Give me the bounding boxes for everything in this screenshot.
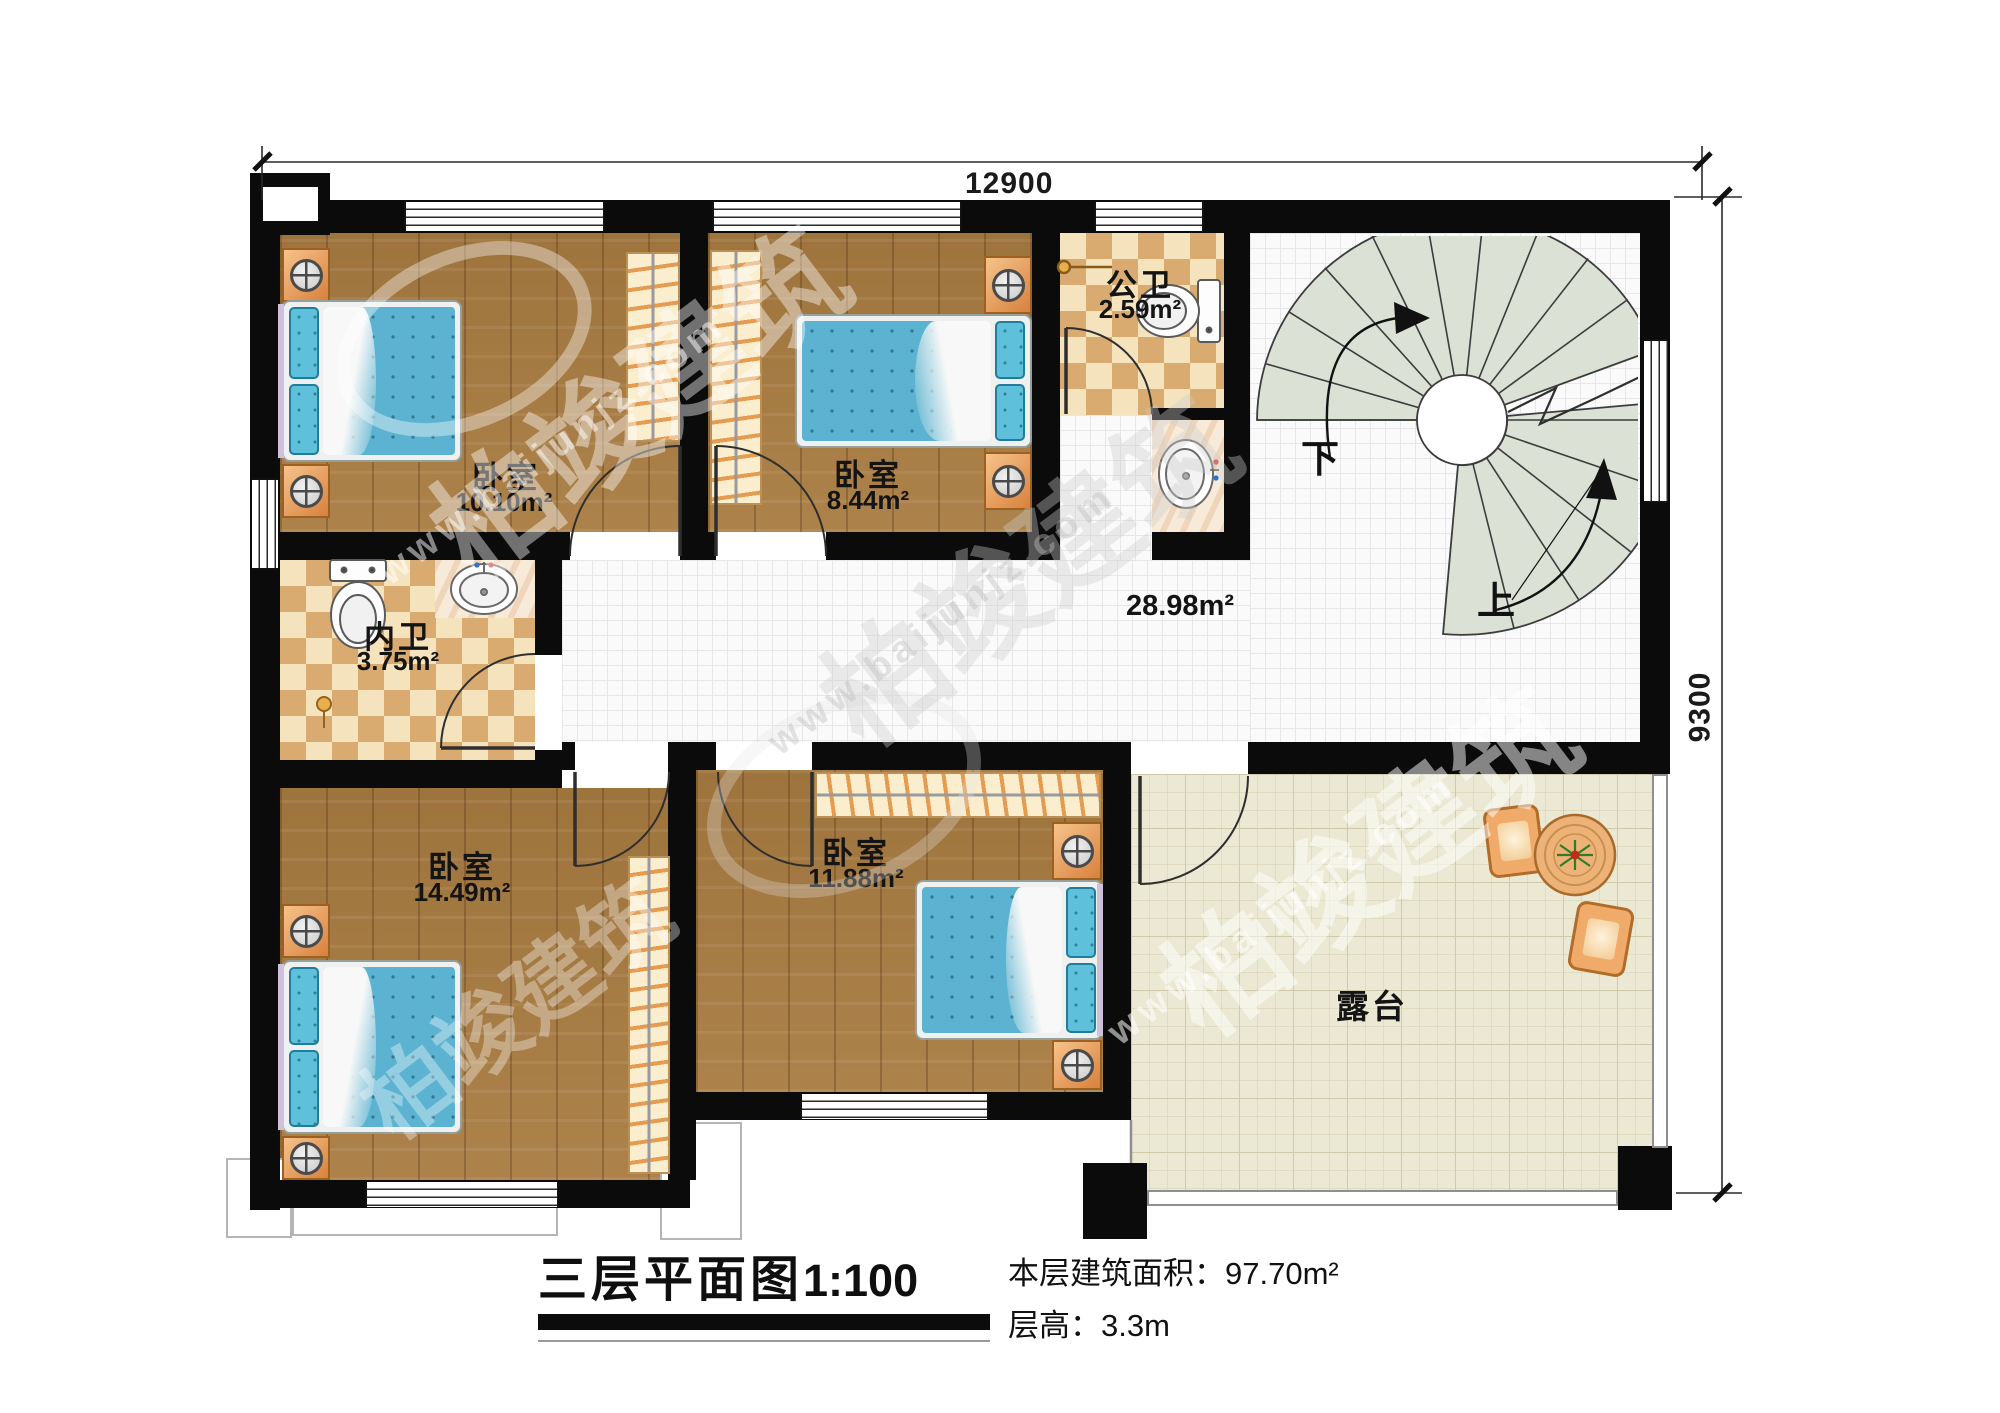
headboard (1097, 884, 1103, 1036)
floor-height-line: 层高：3.3m (1008, 1300, 1170, 1345)
headboard (278, 964, 284, 1130)
bed-bedroom1 (282, 300, 462, 462)
drawing-title: 三层平面图1:100 (538, 1240, 918, 1311)
title-underline-bar (538, 1314, 990, 1330)
terrace-chair (1566, 899, 1635, 978)
lamp-icon (992, 465, 1025, 498)
lamp-icon (290, 475, 323, 508)
lamp-icon (290, 915, 323, 948)
window-stairhall (1094, 202, 1204, 231)
pillows (1066, 887, 1096, 1033)
wall-bath-east (1224, 232, 1250, 532)
nightstand (984, 256, 1032, 314)
blanket (922, 887, 1062, 1033)
title-text: 三层平面图 (538, 1253, 803, 1307)
nightstand (282, 904, 330, 958)
terrace-column-se (1618, 1146, 1672, 1210)
wardrobe-bedroom4 (815, 772, 1101, 818)
blanket (323, 307, 455, 455)
dimension-right: 9300 (1683, 672, 1717, 743)
bedroom3-area: 14.49m² (414, 877, 511, 908)
lamp-icon (290, 1142, 323, 1175)
terrace-label: 露台 (1336, 980, 1408, 1028)
bedroom1-area: 10.10m² (456, 487, 553, 518)
window-bedroom4 (800, 1094, 989, 1119)
nightstand (282, 248, 330, 302)
nightstand (1052, 822, 1102, 880)
floor-area-label: 本层建筑面积： (1008, 1256, 1225, 1291)
wall-nook-top (1152, 408, 1224, 420)
bath-passage-floor (1060, 415, 1152, 560)
window-bedroom2 (712, 202, 962, 231)
lamp-icon (290, 259, 323, 292)
title-underline-thin (538, 1340, 990, 1342)
bedroom4-area: 11.88m² (808, 863, 903, 894)
floorplan-canvas: 卧室 10.10m² 卧室 8.44m² 公卫 2.59m² 内卫 3.75m²… (0, 0, 2000, 1413)
wall-bed2-south-b (826, 532, 1032, 560)
wall-corridor-south-b (668, 742, 716, 770)
window-bedroom3 (365, 1182, 559, 1207)
nightstand (282, 1136, 330, 1180)
terrace-railing-south (1147, 1190, 1618, 1206)
floor-height-value: 3.3m (1101, 1308, 1170, 1343)
public-bath-area: 2.59m² (1099, 294, 1181, 325)
wash-nook-floor (1152, 420, 1224, 532)
wall-terrace-north (1248, 742, 1670, 774)
lamp-icon (992, 269, 1025, 302)
wardrobe-bedroom3 (628, 856, 670, 1174)
wall-bed2-south-a (708, 532, 716, 560)
stairwell-floor (1250, 233, 1640, 742)
pillows (289, 967, 319, 1127)
terrace-chair (1482, 803, 1546, 879)
inner-bath-counter (435, 560, 535, 618)
title-scale: 1:100 (803, 1255, 918, 1306)
wall-innerbath-east-b (535, 750, 562, 760)
wardrobe-bedroom1 (626, 252, 680, 442)
wall-innerbath-east-a (535, 560, 562, 655)
wall-left (250, 200, 280, 1210)
lamp-icon (1061, 835, 1094, 868)
headboard (278, 304, 284, 458)
bed-bedroom3 (282, 960, 462, 1134)
wall-bed1-south (280, 532, 570, 560)
floor-area-line: 本层建筑面积：97.70m² (1008, 1248, 1339, 1293)
floor-area-value: 97.70m² (1225, 1256, 1339, 1291)
wall-innerbath-south (250, 760, 562, 788)
corner-flue-void (263, 187, 318, 221)
lamp-icon (1061, 1049, 1094, 1082)
window-stairs-east (1644, 339, 1668, 503)
bedroom2-area: 8.44m² (827, 485, 909, 516)
exterior-step (292, 1206, 558, 1236)
blanket (802, 321, 991, 441)
terrace-railing-east (1652, 774, 1668, 1148)
window-innerbath (252, 478, 278, 570)
dimension-top: 12900 (965, 167, 1053, 201)
window-bedroom1 (404, 202, 605, 231)
nightstand (282, 464, 330, 518)
bed-bedroom2 (795, 314, 1032, 448)
nightstand (984, 452, 1032, 510)
stairs-down-label: 下 (1301, 428, 1339, 483)
hallway-area: 28.98m² (1126, 590, 1234, 623)
wall-bed1-bed2 (680, 232, 708, 560)
wall-bed4-east (1103, 742, 1131, 1120)
nightstand (1052, 1040, 1102, 1090)
inner-bath-area: 3.75m² (357, 646, 439, 677)
wall-nook-south (1152, 532, 1250, 560)
terrace-column-sw (1083, 1163, 1147, 1239)
pillows (289, 307, 319, 455)
wall-corridor-south-c (812, 742, 1103, 770)
wall-bed2-bath (1032, 232, 1060, 560)
floor-height-label: 层高： (1008, 1308, 1101, 1343)
blanket (323, 967, 455, 1127)
wall-corridor-south-a (562, 742, 575, 770)
bed-bedroom4 (915, 880, 1103, 1040)
wardrobe-bedroom2 (710, 250, 762, 505)
stairs-up-label: 上 (1477, 570, 1515, 625)
pillows (995, 321, 1025, 441)
